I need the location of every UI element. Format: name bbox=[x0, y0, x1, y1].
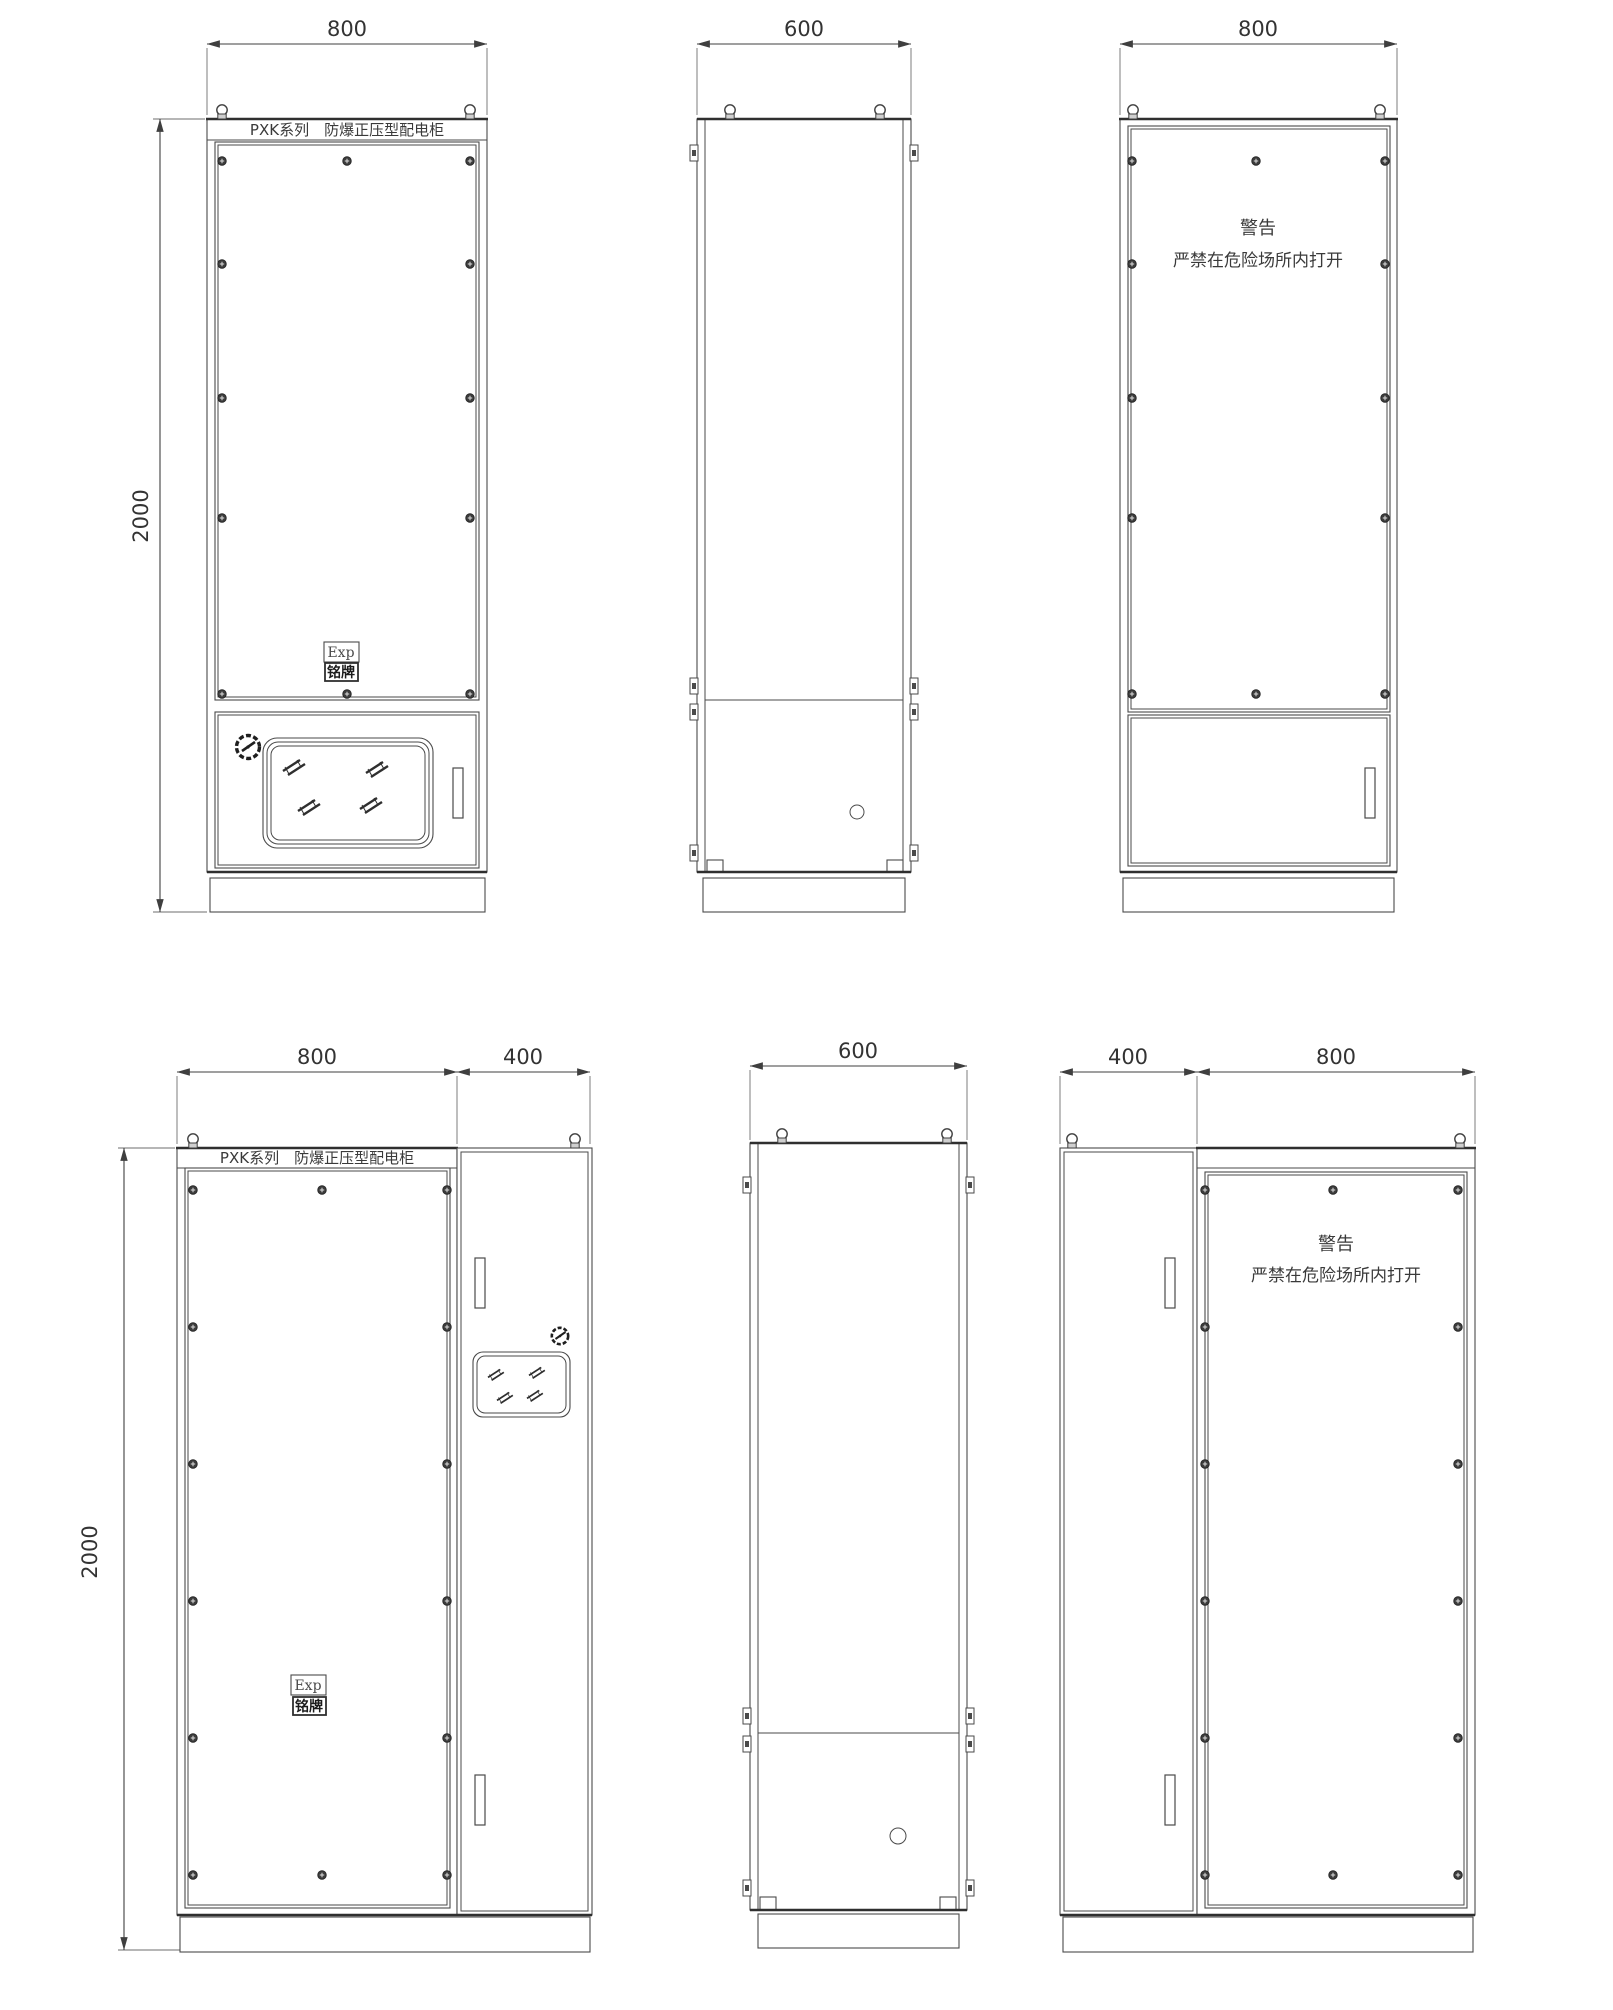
pressure-gauge bbox=[237, 736, 260, 759]
lower-door bbox=[215, 712, 479, 868]
dimension-width-800: 800 bbox=[1120, 17, 1397, 115]
vent-slot bbox=[1165, 1775, 1175, 1825]
lifting-eye-icon bbox=[777, 1129, 787, 1143]
back-view-top: 800 警告 严禁在危险场所内打开 bbox=[1119, 17, 1398, 912]
lifting-eye-icon bbox=[217, 105, 227, 119]
base-plinth bbox=[180, 1917, 590, 1952]
dim-width-main-label: 800 bbox=[1238, 17, 1278, 41]
front-view-bottom: 800 400 2000 PXK系列 防爆正压型配电柜 bbox=[78, 1045, 592, 1952]
dimension-width-800: 800 bbox=[207, 17, 487, 115]
foot-tab bbox=[887, 860, 903, 872]
product-header-label: PXK系列 防爆正压型配电柜 bbox=[250, 121, 444, 139]
dimension-height-2000: 2000 bbox=[129, 119, 207, 912]
nameplate-exp-label: Exp bbox=[294, 1678, 321, 1694]
dim-height-label: 2000 bbox=[78, 1525, 102, 1578]
nameplate: 铭牌 bbox=[325, 663, 358, 681]
dim-width-main-label: 800 bbox=[297, 1045, 337, 1069]
nameplate-label: 铭牌 bbox=[295, 1698, 323, 1715]
dimension-depth-600: 600 bbox=[750, 1039, 967, 1140]
vent-slot bbox=[475, 1775, 485, 1825]
nameplate-exp: Exp bbox=[324, 642, 359, 662]
dim-width-main-label: 800 bbox=[327, 17, 367, 41]
main-door bbox=[215, 142, 479, 700]
nameplate-label: 铭牌 bbox=[327, 664, 355, 681]
cabinet-body bbox=[750, 1143, 967, 1910]
lower-panel bbox=[1128, 715, 1390, 866]
dimension-depth-600: 600 bbox=[697, 17, 911, 115]
foot-tab bbox=[707, 860, 723, 872]
base-plinth bbox=[210, 878, 485, 912]
lifting-eye-icon bbox=[942, 1129, 952, 1143]
cabinet-body bbox=[697, 119, 911, 872]
lifting-eye-icon bbox=[725, 105, 735, 119]
lifting-eye-icon bbox=[188, 1134, 198, 1148]
dim-depth-label: 600 bbox=[784, 17, 824, 41]
base-plinth bbox=[758, 1914, 959, 1948]
dimension-height-2000: 2000 bbox=[78, 1148, 180, 1950]
side-view-bottom: 600 bbox=[743, 1039, 974, 1948]
dim-duct-label: 400 bbox=[503, 1045, 543, 1069]
lifting-eye-icon bbox=[1455, 1134, 1465, 1148]
nameplate-exp-label: Exp bbox=[327, 645, 354, 661]
dim-height-label: 2000 bbox=[129, 489, 153, 542]
drawing-sheet: 800 2000 PXK系列 防爆正压型配电柜 Exp bbox=[0, 0, 1613, 2010]
vent-slot bbox=[1165, 1258, 1175, 1308]
product-header-label: PXK系列 防爆正压型配电柜 bbox=[220, 1149, 414, 1167]
warning-text: 严禁在危险场所内打开 bbox=[1173, 251, 1343, 271]
dim-duct-label: 400 bbox=[1108, 1045, 1148, 1069]
foot-tab bbox=[760, 1897, 776, 1910]
side-duct bbox=[1060, 1134, 1197, 1915]
back-door bbox=[1128, 126, 1390, 712]
dim-width-main-label: 800 bbox=[1316, 1045, 1356, 1069]
foot-tab bbox=[940, 1897, 956, 1910]
warning-title: 警告 bbox=[1240, 218, 1276, 239]
lifting-eye-icon bbox=[1128, 105, 1138, 119]
back-view-bottom: 400 800 警告 严禁在危险场所内打开 bbox=[1060, 1045, 1476, 1952]
lifting-eye-icon bbox=[875, 105, 885, 119]
dimension-width-800: 800 400 bbox=[177, 1045, 590, 1144]
side-view-top: 600 bbox=[690, 17, 918, 912]
lifting-eye-icon bbox=[570, 1134, 580, 1148]
lifting-eye-icon bbox=[465, 105, 475, 119]
inspection-window bbox=[263, 738, 433, 848]
dim-depth-label: 600 bbox=[838, 1039, 878, 1063]
door-handle-slot bbox=[453, 768, 463, 818]
inspection-window bbox=[473, 1352, 570, 1417]
front-view-top: 800 2000 PXK系列 防爆正压型配电柜 Exp bbox=[129, 17, 488, 912]
dimension-width-800: 400 800 bbox=[1060, 1045, 1475, 1144]
door-handle-slot bbox=[1365, 768, 1375, 818]
pressure-gauge bbox=[552, 1328, 568, 1344]
base-plinth bbox=[1063, 1917, 1473, 1952]
nameplate-exp: Exp bbox=[291, 1675, 326, 1695]
main-door bbox=[185, 1168, 450, 1908]
base-plinth bbox=[1123, 878, 1394, 912]
lifting-eye-icon bbox=[1375, 105, 1385, 119]
base-plinth bbox=[703, 878, 905, 912]
side-duct bbox=[457, 1134, 592, 1915]
nameplate: 铭牌 bbox=[293, 1697, 326, 1715]
lifting-eye-icon bbox=[1067, 1134, 1077, 1148]
warning-title: 警告 bbox=[1318, 1234, 1354, 1255]
warning-text: 严禁在危险场所内打开 bbox=[1251, 1266, 1421, 1286]
vent-slot bbox=[475, 1258, 485, 1308]
